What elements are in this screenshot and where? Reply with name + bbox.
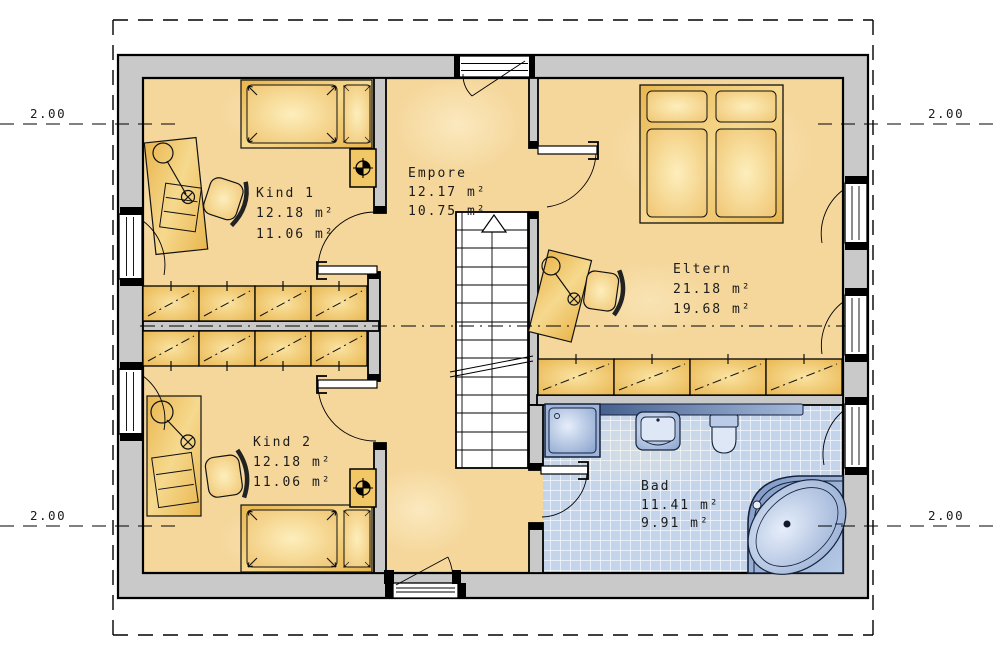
closets-eltern [538, 354, 842, 395]
washbasin [636, 412, 680, 450]
dimension-label: 2.00 [30, 106, 66, 121]
wall-empore-bad-upper [529, 405, 543, 470]
wall-kind1-empore [374, 78, 386, 213]
room-label-bad: Bad [641, 479, 670, 494]
wardrobe-unit [766, 359, 842, 395]
wall-kind2-empore [374, 443, 386, 573]
desk [147, 396, 201, 516]
room-area-eltern: 21.18 m² [673, 282, 752, 297]
wardrobe-unit [614, 359, 690, 395]
dimension-label: 2.00 [928, 106, 964, 121]
bed [241, 80, 372, 148]
room-area-bad: 11.41 m² [641, 498, 720, 513]
room-area-kind1: 12.18 m² [256, 206, 335, 221]
room-living-area-empore: 10.75 m² [408, 204, 487, 219]
shower [545, 404, 600, 457]
room-living-area-kind1: 11.06 m² [256, 227, 335, 242]
floor-plan-drawing: Kind 1 12.18 m² 11.06 m² Empore 12.17 m²… [0, 0, 1000, 672]
room-label-eltern: Eltern [673, 262, 732, 277]
wardrobe-unit [538, 359, 614, 395]
room-label-kind1: Kind 1 [256, 186, 315, 201]
wardrobe-unit [690, 359, 766, 395]
room-label-empore: Empore [408, 166, 467, 181]
vanity-counter [598, 404, 803, 415]
room-label-kind2: Kind 2 [253, 435, 312, 450]
double-bed [640, 85, 783, 223]
floor-plan-page: Kind 1 12.18 m² 11.06 m² Empore 12.17 m²… [0, 0, 1000, 672]
toilet [710, 415, 738, 453]
dimension-label: 2.00 [30, 508, 66, 523]
wall-empore-bad-lower [529, 523, 543, 573]
staircase [450, 212, 533, 468]
bed [241, 505, 372, 572]
room-living-area-bad: 9.91 m² [641, 516, 710, 531]
dimension-label: 2.00 [928, 508, 964, 523]
room-area-empore: 12.17 m² [408, 185, 487, 200]
wall-empore-eltern [529, 78, 538, 148]
room-area-kind2: 12.18 m² [253, 455, 332, 470]
room-living-area-kind2: 11.06 m² [253, 475, 332, 490]
room-living-area-eltern: 19.68 m² [673, 302, 752, 317]
